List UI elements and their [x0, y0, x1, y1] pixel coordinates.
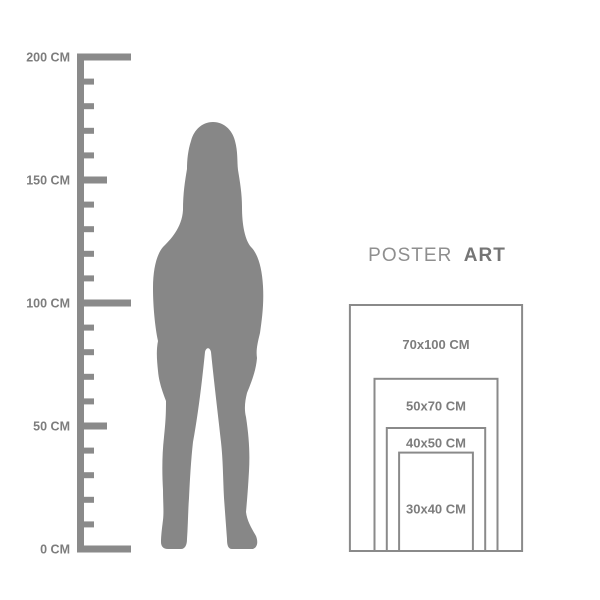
ruler-tick-40cm	[77, 448, 94, 454]
ruler-tick-160cm	[77, 152, 94, 158]
ruler-tick-110cm	[77, 275, 94, 281]
ruler-label-100cm: 100 CM	[26, 297, 70, 311]
height-ruler: 200 CM150 CM100 CM50 CM0 CM	[26, 51, 131, 557]
ruler-label-50cm: 50 CM	[33, 420, 70, 434]
ruler-tick-170cm	[77, 128, 94, 134]
poster-size-label-70x100: 70x100 CM	[402, 337, 469, 352]
ruler-tick-150cm	[77, 177, 107, 184]
ruler-label-0cm: 0 CM	[40, 543, 70, 557]
poster-size-guide: 200 CM150 CM100 CM50 CM0 CM POSTER ART 7…	[0, 0, 600, 600]
woman-silhouette-icon	[153, 122, 263, 549]
ruler-tick-20cm	[77, 497, 94, 503]
ruler-tick-90cm	[77, 325, 94, 331]
ruler-tick-130cm	[77, 226, 94, 232]
ruler-tick-180cm	[77, 103, 94, 109]
ruler-tick-50cm	[77, 423, 107, 430]
ruler-tick-190cm	[77, 79, 94, 85]
ruler-tick-100cm	[77, 300, 131, 307]
ruler-tick-70cm	[77, 374, 94, 380]
ruler-tick-120cm	[77, 251, 94, 257]
poster-size-label-50x70: 50x70 CM	[406, 398, 466, 413]
brand-title: POSTER ART	[368, 245, 506, 266]
ruler-tick-200cm	[77, 54, 131, 61]
ruler-tick-80cm	[77, 349, 94, 355]
ruler-label-200cm: 200 CM	[26, 51, 70, 65]
size-guide-illustration: 200 CM150 CM100 CM50 CM0 CM POSTER ART 7…	[0, 0, 600, 600]
ruler-tick-60cm	[77, 398, 94, 404]
ruler-tick-10cm	[77, 521, 94, 527]
ruler-tick-140cm	[77, 202, 94, 208]
brand-word-bold: ART	[464, 245, 506, 266]
poster-size-label-30x40: 30x40 CM	[406, 502, 466, 517]
poster-size-frames: 70x100 CM50x70 CM40x50 CM30x40 CM	[350, 305, 522, 551]
ruler-label-150cm: 150 CM	[26, 174, 70, 188]
ruler-tick-0cm	[77, 546, 131, 553]
poster-size-label-40x50: 40x50 CM	[406, 435, 466, 450]
ruler-tick-30cm	[77, 472, 94, 478]
brand-word-regular: POSTER	[368, 245, 452, 266]
